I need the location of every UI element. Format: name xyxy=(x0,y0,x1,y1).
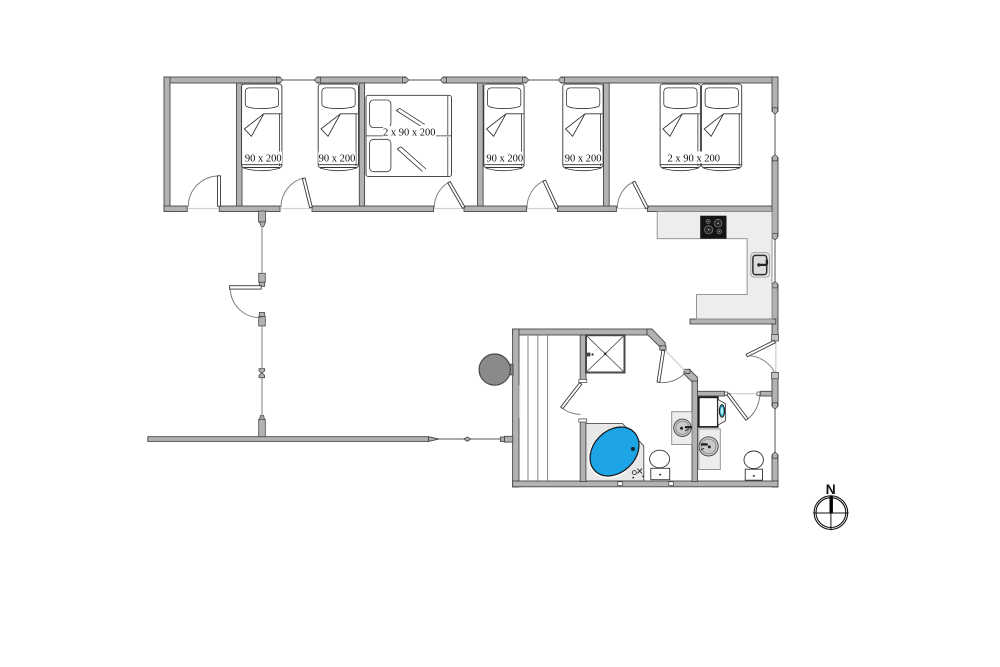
svg-text:90 x 200: 90 x 200 xyxy=(565,153,602,164)
svg-text:2 x 90 x 200: 2 x 90 x 200 xyxy=(667,153,720,164)
svg-text:90 x 200: 90 x 200 xyxy=(486,153,523,164)
svg-text:N: N xyxy=(826,481,836,497)
svg-text:2 x 90 x 200: 2 x 90 x 200 xyxy=(383,128,436,139)
svg-text:90 x 200: 90 x 200 xyxy=(319,153,356,164)
svg-text:90 x 200: 90 x 200 xyxy=(245,153,282,164)
